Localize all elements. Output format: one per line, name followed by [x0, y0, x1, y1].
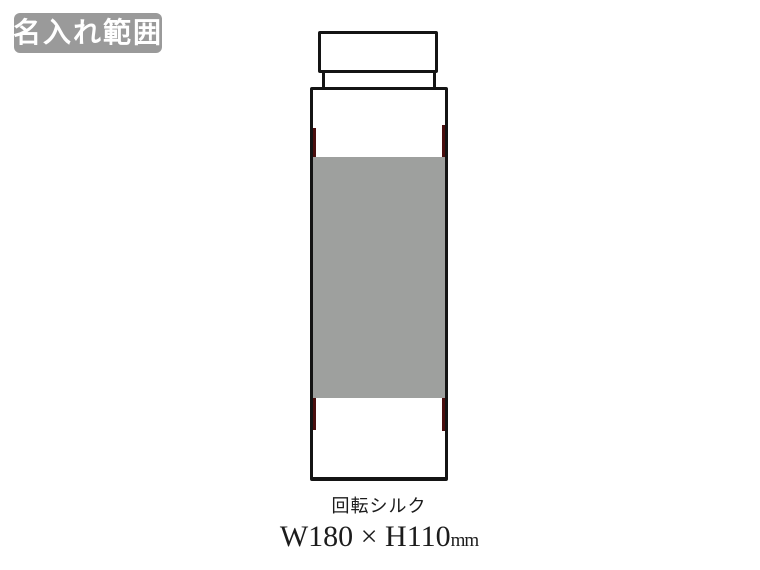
imprint-area-diagram: 名入れ範囲 回転シルク W180 × H110mm: [0, 0, 760, 570]
bottle-edge-accent-top-right: [442, 125, 445, 157]
print-method-label: 回転シルク: [229, 496, 529, 518]
bottle-edge-accent-top-left: [313, 128, 316, 157]
bottle-neck-band: [322, 73, 436, 87]
print-size-label: W180 × H110mm: [229, 520, 529, 553]
bottle-body: [310, 87, 448, 481]
bottle-edge-accent-bottom-right: [442, 398, 445, 431]
print-size-unit: mm: [451, 530, 479, 551]
bottle-edge-accent-bottom-left: [313, 398, 316, 430]
bottle-cap: [318, 31, 438, 73]
imprint-area-badge-label: 名入れ範囲: [13, 19, 163, 47]
imprint-area-badge: 名入れ範囲: [14, 13, 162, 53]
print-size-value: W180 × H110: [280, 520, 451, 553]
caption-block: 回転シルク W180 × H110mm: [229, 496, 529, 553]
print-area-overlay: [313, 157, 445, 398]
